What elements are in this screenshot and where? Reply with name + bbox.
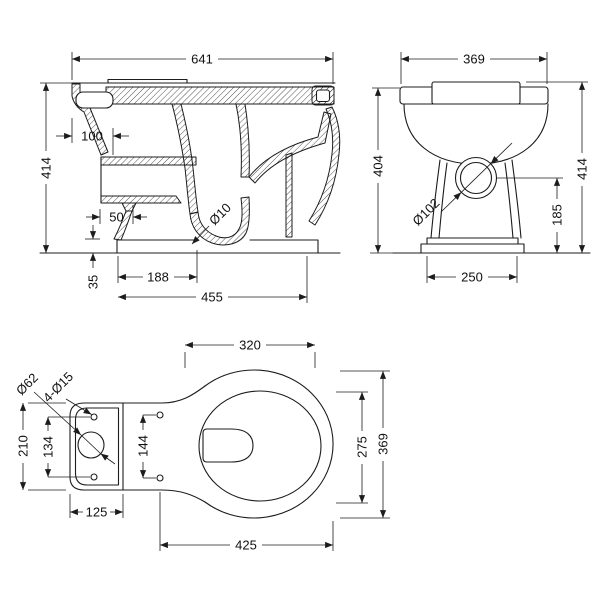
fixing-hole-neck-bottom [157,475,163,481]
dim-label-641: 641 [191,52,213,67]
dim-label-35: 35 [86,275,101,289]
dim-base-width: 250 [427,256,517,285]
dim-label-185: 185 [550,204,565,226]
fixing-hole-platform-bottom [91,474,97,480]
dim-seat-hole-spacing: 144 [136,415,157,478]
technical-drawing-page: 641 414 100 50 [0,0,600,603]
dim-label-d62: Ø62 [13,370,41,398]
dim-rim-height: 404 [370,88,400,253]
toilet-dimension-drawing: 641 414 100 50 [0,0,600,603]
dim-label-125: 125 [86,505,108,520]
dim-label-188: 188 [147,270,169,285]
dim-platform-width: 125 [70,494,123,520]
dim-overall-width: 369 [401,52,547,85]
dim-bowl-inner-depth: 275 [336,392,370,503]
dim-label-320: 320 [239,338,261,353]
dim-plinth-height: 35 [85,225,101,289]
pedestal-left-inner-line [439,163,447,238]
dim-label-210: 210 [16,435,31,457]
dim-label-425: 425 [235,538,257,553]
fixing-hole-platform-top [91,414,97,420]
dim-label-414-front: 414 [575,158,590,180]
dim-label-50: 50 [109,210,123,225]
dim-label-4d15: 4-Ø15 [40,369,76,405]
platform-inner-line [76,408,119,485]
pedestal-rear-wall-section [286,153,292,237]
dim-outlet-offset: 50 [86,205,147,225]
neck-bottom-edge [123,490,205,502]
dim-label-100: 100 [81,129,103,144]
rim-center-block [432,82,520,104]
dim-label-144: 144 [136,435,151,457]
dim-outlet-center: 188 [118,250,197,285]
socket-stub-wall [122,203,136,211]
dim-bowl-projection: 425 [160,492,333,553]
dim-label-134: 134 [41,436,56,458]
plan-view [70,370,333,518]
pedestal-right-inner-line [505,163,513,238]
dim-label-455: 455 [201,290,223,305]
rim-wall-section [106,87,334,104]
fixing-hole-neck-top [157,412,163,418]
base-step-upper [427,238,518,244]
dim-label-275: 275 [355,436,370,458]
base-step-lower [421,244,524,253]
dim-label-369-front: 369 [463,52,485,67]
dim-label-d10: Ø10 [206,200,234,228]
pedestal-right-edge [512,160,521,238]
neck-top-edge [123,386,205,403]
dim-label-d102: Ø102 [409,195,442,228]
callout-fixing-holes: 4-Ø15 [40,369,92,415]
dim-bowl-inner-width: 320 [185,338,315,369]
rim-channel-cavity [76,92,113,108]
flush-duct-wall-section [236,104,249,177]
dim-label-404: 404 [371,155,386,177]
dim-label-414-side: 414 [39,157,54,179]
dim-label-369-plan: 369 [376,433,391,455]
flush-outlet-hole [203,429,253,462]
front-rim-box-core [317,90,330,102]
dim-overall-height-side: 414 [39,83,73,253]
bowl-dome-outline [404,104,548,164]
side-section-view [40,80,340,254]
bowl-outer-outline [205,370,333,518]
bowl-inner-rim [199,391,321,501]
dim-label-250: 250 [461,270,483,285]
inlet-socket-bottom-wall [101,196,181,203]
inlet-socket-top-wall [101,157,196,165]
dim-platform-hole-spacing: 134 [41,417,91,477]
